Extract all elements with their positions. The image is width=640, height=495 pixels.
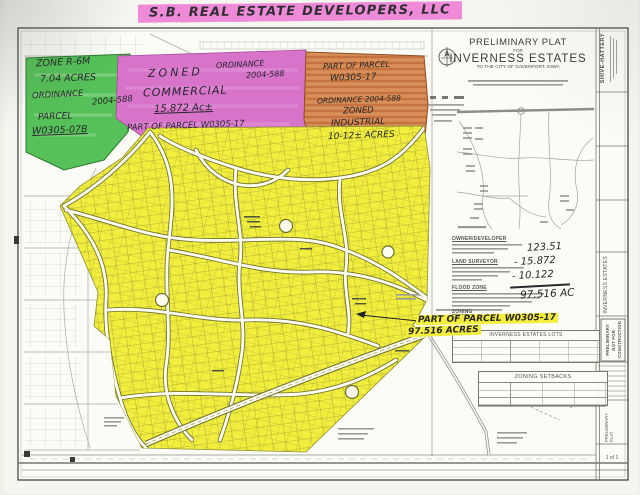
stamp-line-1: PRELIMINARY [605,324,610,356]
pink-zone-line-5: 15.872 Ac± [154,102,213,115]
firm-address-line [616,40,617,74]
stamp-line-2: NOT FOR [611,330,616,351]
pink-zone-line-1: ZONED [148,65,203,80]
plat-title-line3: INVERNESS ESTATES [440,53,596,65]
orange-zone-line-4: ZONED [343,105,374,116]
section-land-surveyor: LAND SURVEYOR [452,259,498,265]
sheet-number: 1 of 1 [598,448,626,468]
firm-name-block: SHIVE-HATTERY [600,33,606,91]
orange-zone-line-5: INDUSTRIAL [331,117,386,129]
green-zone-line-5: PARCEL [38,111,73,122]
firm-address-line [613,38,614,78]
section-owner-developer: OWNER/DEVELOPER [452,236,506,242]
project-name: INVERNESS ESTATES [603,256,609,313]
green-zone-line-2: 7.04 ACRES [40,72,96,85]
document-title-text: S.B. REAL ESTATE DEVELOPERS, LLC [140,1,460,22]
plat-title-block: PRELIMINARY PLAT FOR INVERNESS ESTATES T… [440,37,596,70]
document-title: S.B. REAL ESTATE DEVELOPERS, LLC [140,2,460,20]
green-zone-line-6: W0305-07B [32,124,88,137]
firm-name: SHIVE-HATTERY [600,33,606,83]
lots-table: INVERNESS ESTATES LOTS [452,330,600,363]
setbacks-table-title: ZONING SETBACKS [479,372,607,383]
lots-table-grid [453,341,599,362]
sheet-type: PRELIMINARY PLAT [604,402,614,442]
calc-line-2: - 15.872 [514,255,556,268]
preliminary-stamp: PRELIMINARY NOT FOR CONSTRUCTION [601,319,625,361]
plat-title-line4: TO THE CITY OF DAVENPORT, IOWA [440,65,596,70]
firm-address-line [610,36,611,82]
plat-title-line1: PRELIMINARY PLAT [440,37,596,48]
orange-zone-line-2: W0305-17 [330,72,377,84]
section-flood-zone: FLOOD ZONE [452,285,487,291]
sheet-type-block: PRELIMINARY PLAT [604,402,614,442]
stamp-line-3: CONSTRUCTION [617,321,622,358]
scanned-plat-document: S.B. REAL ESTATE DEVELOPERS, LLC ZONE R-… [0,0,640,495]
setbacks-table-grid [479,383,607,405]
setbacks-table: ZONING SETBACKS [478,371,608,406]
project-name-block: INVERNESS ESTATES [603,256,609,314]
calc-line-3: - 10.122 [512,269,554,282]
calc-line-1: 123.51 [527,241,563,254]
